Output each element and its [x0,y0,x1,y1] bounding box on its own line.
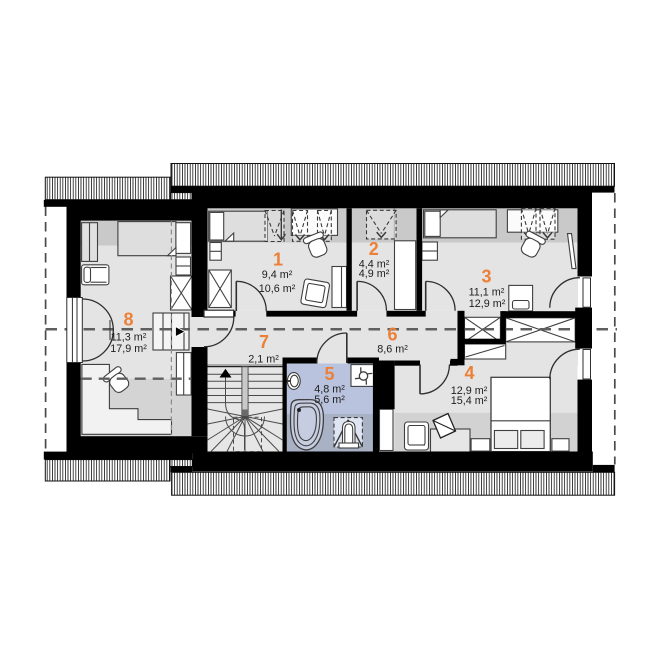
svg-text:11,1 m²: 11,1 m² [469,286,505,298]
svg-text:9,4 m²: 9,4 m² [262,269,293,281]
svg-text:7: 7 [259,332,269,352]
svg-text:1: 1 [273,250,283,270]
svg-text:15,4 m²: 15,4 m² [451,395,488,407]
svg-text:4: 4 [464,363,474,383]
svg-text:12,9 m²: 12,9 m² [469,298,506,310]
svg-text:4,9 m²: 4,9 m² [359,268,390,280]
svg-text:5,6 m²: 5,6 m² [314,394,345,406]
svg-text:8: 8 [123,310,133,330]
svg-text:3: 3 [481,267,491,287]
svg-text:17,9 m²: 17,9 m² [110,343,147,355]
svg-text:8,6 m²: 8,6 m² [377,344,408,356]
svg-text:2,1 m²: 2,1 m² [248,354,279,366]
svg-text:10,6 m²: 10,6 m² [259,283,296,295]
svg-text:6: 6 [387,325,397,345]
svg-text:2: 2 [369,239,379,259]
svg-text:5: 5 [324,364,334,384]
svg-text:11,3 m²: 11,3 m² [111,331,147,343]
